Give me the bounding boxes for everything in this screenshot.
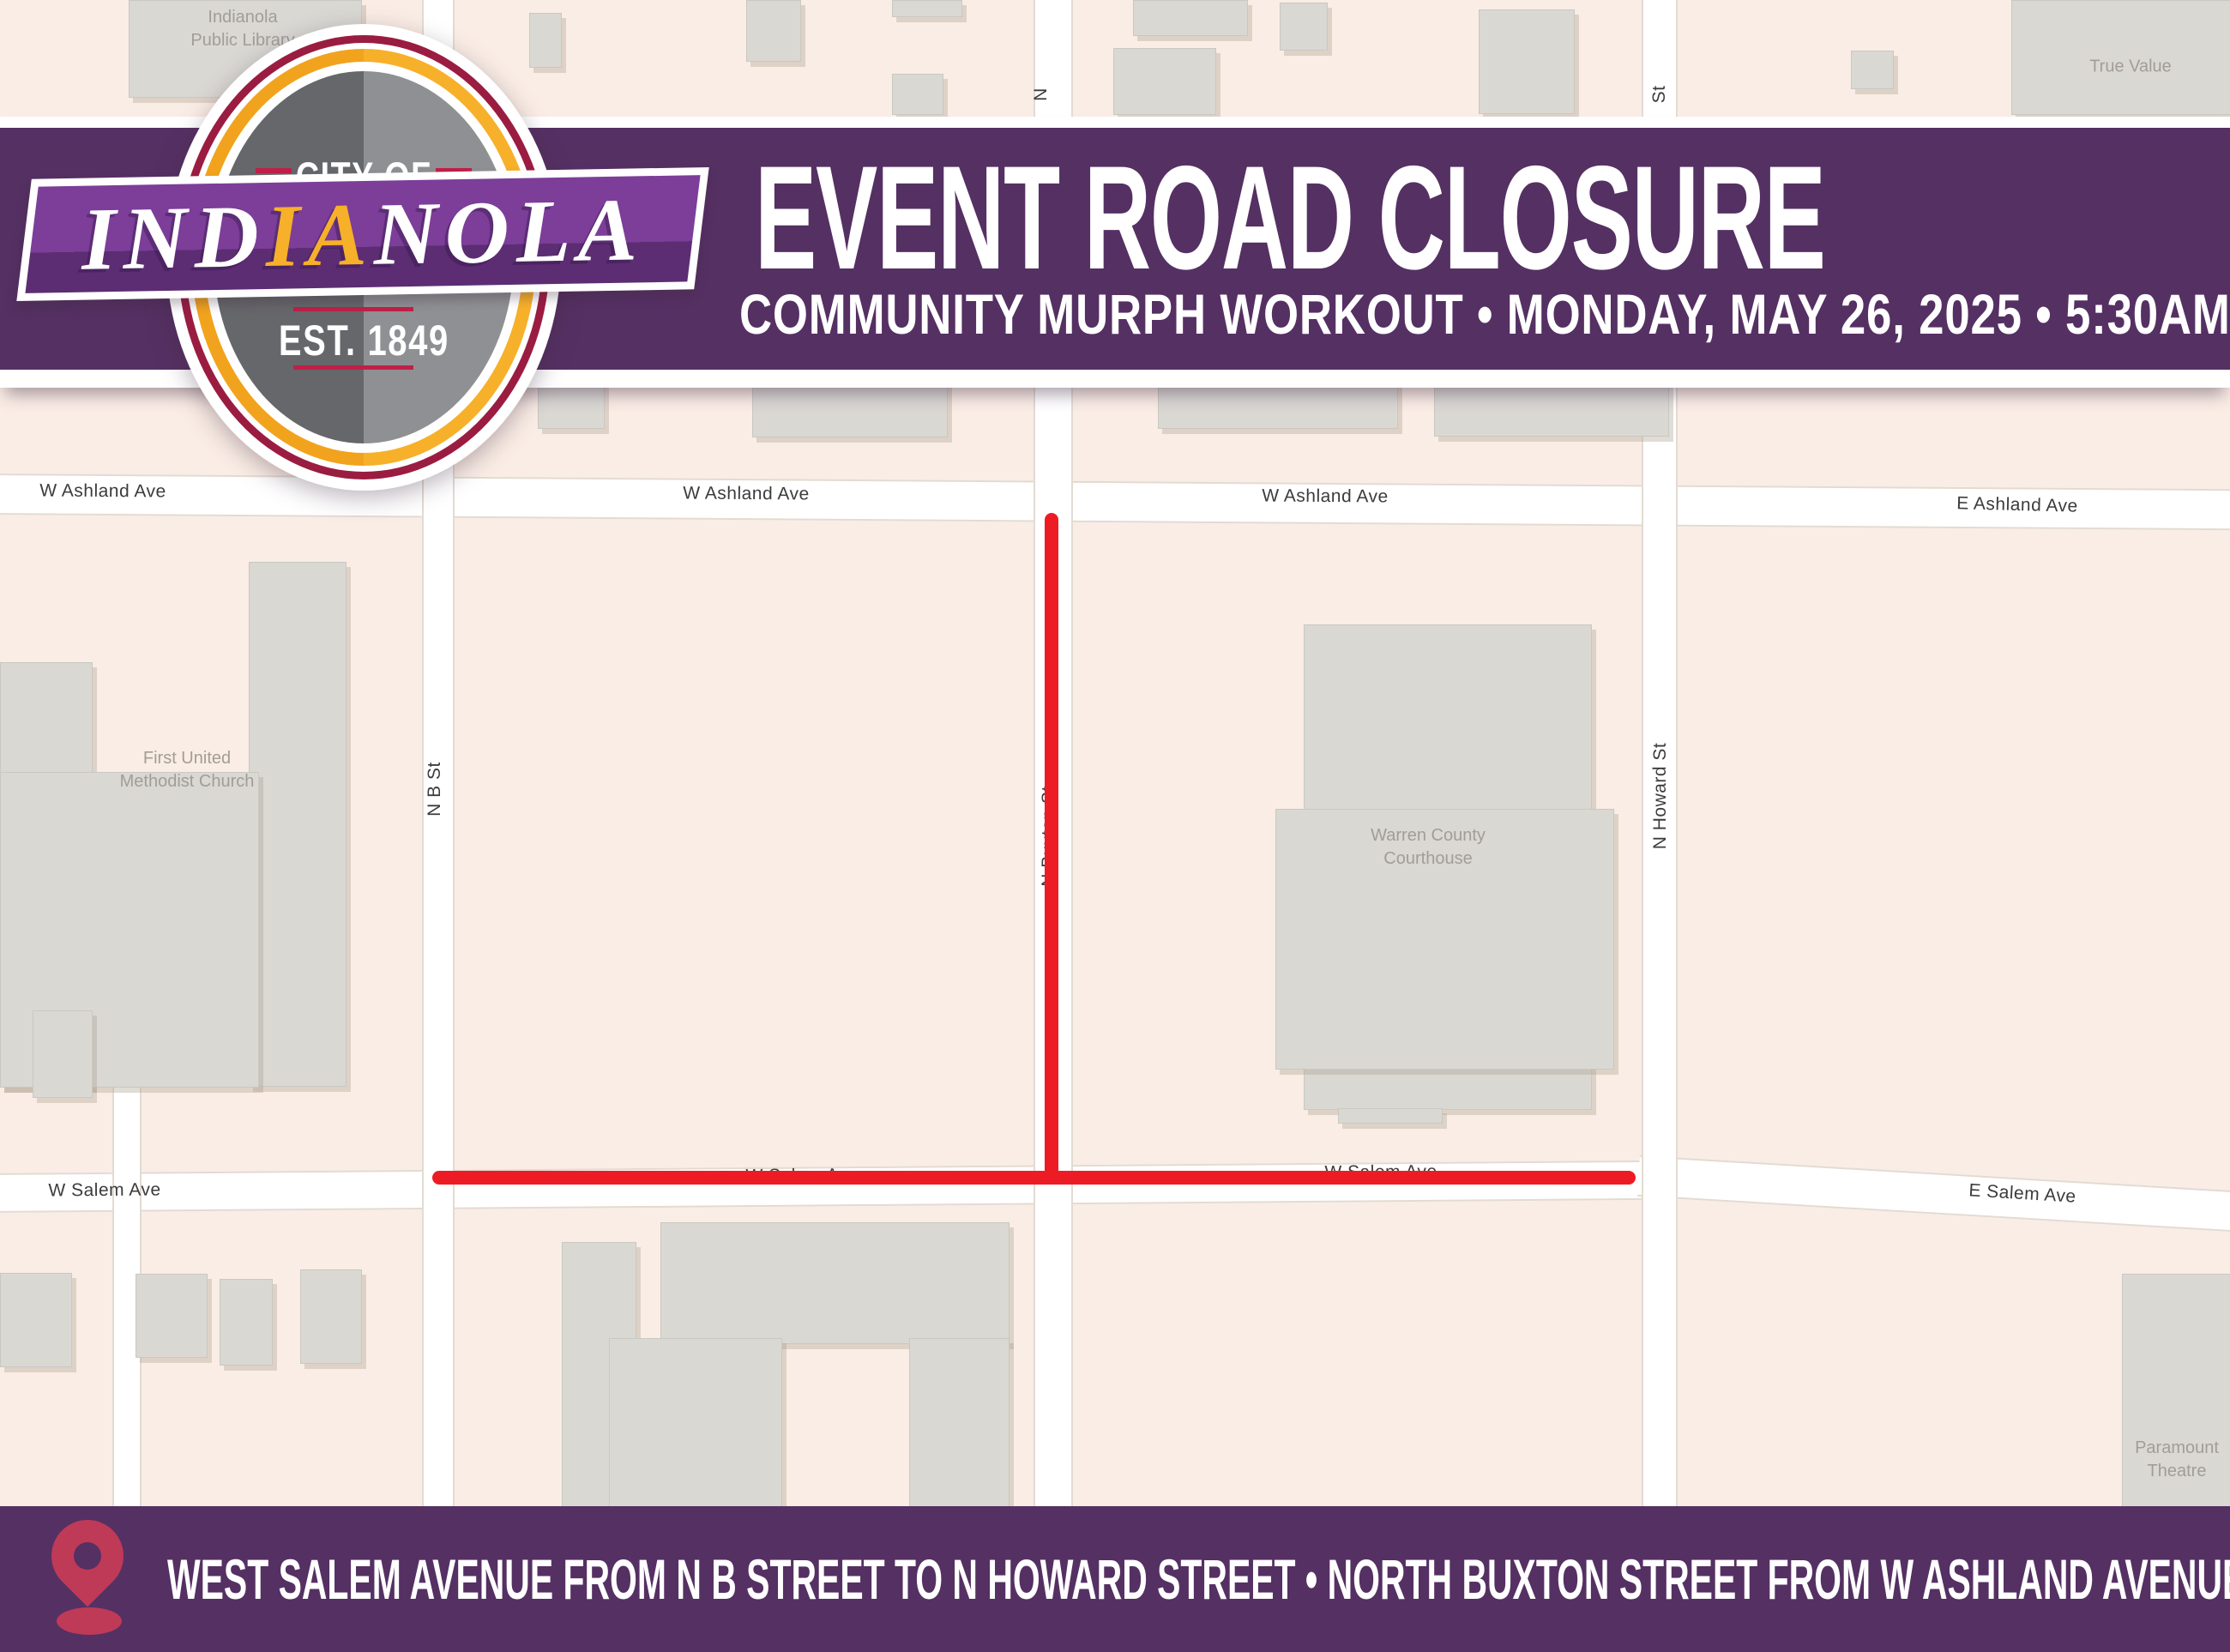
event-details: COMMUNITY MURPH WORKOUT • MONDAY, MAY 26… (739, 286, 2230, 342)
closure-description: WEST SALEM AVENUE FROM N B STREET TO N H… (167, 1551, 2230, 1607)
logo-est-text: EST. 1849 (166, 316, 561, 365)
building (300, 1269, 362, 1364)
building (909, 1338, 1010, 1508)
building (136, 1274, 208, 1358)
street-label: N Howard St (1650, 743, 1671, 850)
building (33, 1010, 93, 1098)
building (0, 1273, 72, 1367)
closure-line-buxton-street (1045, 513, 1058, 1185)
building (609, 1338, 782, 1508)
street-label: W Ashland Ave (39, 480, 166, 502)
logo-est-top-line (293, 307, 413, 311)
road-closure-graphic: IndianolaPublic LibraryFirst UnitedMetho… (0, 0, 2230, 1652)
street-label: W Ashland Ave (1262, 485, 1389, 507)
building (746, 0, 801, 62)
logo-ribbon-inner: INDIANOLA (25, 175, 700, 293)
building (1280, 3, 1328, 51)
building (1851, 51, 1894, 89)
building (249, 562, 347, 1087)
logo-city-name: INDIANOLA (81, 178, 645, 290)
street-label: St (1649, 86, 1670, 104)
closure-line-salem-avenue (432, 1171, 1636, 1185)
building (1338, 1108, 1443, 1124)
street-label: W Salem Ave (48, 1179, 160, 1201)
street-label: W Ashland Ave (683, 483, 810, 504)
street-label: E Ashland Ave (1956, 493, 2078, 516)
location-pin-icon (37, 1505, 139, 1607)
building (660, 1222, 1010, 1344)
footer-banner: WEST SALEM AVENUE FROM N B STREET TO N H… (0, 1506, 2230, 1652)
building-label: Warren CountyCourthouse (1371, 824, 1486, 871)
building-label: ParamountTheatre (2135, 1437, 2219, 1483)
building (1133, 0, 1248, 36)
logo-ribbon: INDIANOLA (16, 167, 708, 301)
building-label: First UnitedMethodist Church (120, 747, 255, 793)
street-label: N (1031, 87, 1052, 101)
page-title: EVENT ROAD CLOSURE (755, 144, 1825, 292)
location-pin-base (57, 1607, 122, 1635)
logo-ia-letters: IA (265, 184, 375, 285)
street (1637, 1155, 2230, 1232)
logo-est-bottom-line (293, 365, 413, 370)
building (220, 1279, 273, 1366)
building (892, 74, 943, 115)
building (892, 0, 962, 17)
building (1479, 9, 1575, 114)
building-label: True Value (2089, 56, 2172, 79)
building (1113, 48, 1216, 115)
street-label: N B St (425, 762, 445, 817)
